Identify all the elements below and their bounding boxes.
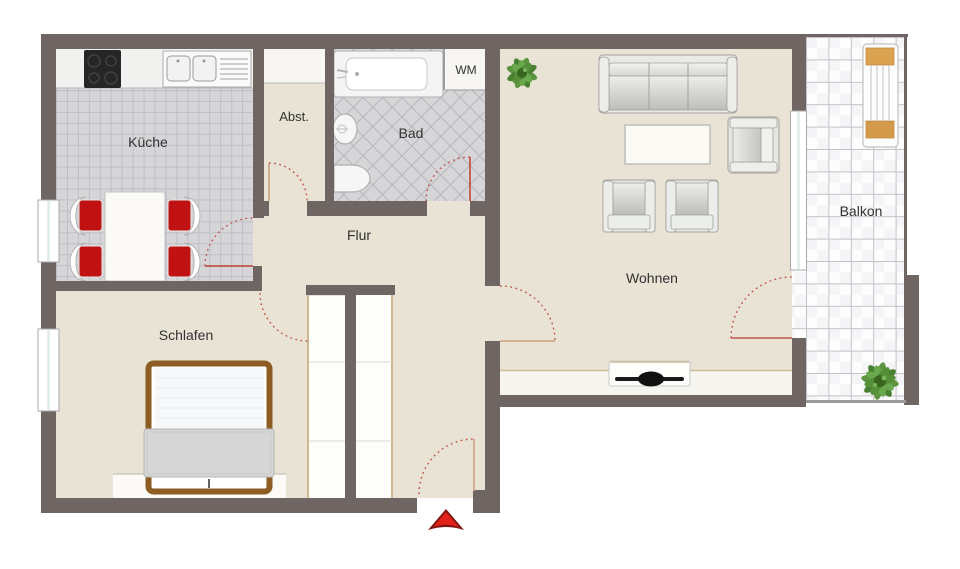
svg-text:Küche: Küche bbox=[128, 134, 168, 150]
svg-text:WM: WM bbox=[455, 63, 476, 77]
svg-text:Flur: Flur bbox=[347, 227, 371, 243]
svg-text:Bad: Bad bbox=[399, 125, 424, 141]
svg-text:Schlafen: Schlafen bbox=[159, 327, 213, 343]
svg-text:Wohnen: Wohnen bbox=[626, 270, 678, 286]
svg-text:Balkon: Balkon bbox=[840, 203, 883, 219]
svg-text:Abst.: Abst. bbox=[279, 109, 309, 124]
